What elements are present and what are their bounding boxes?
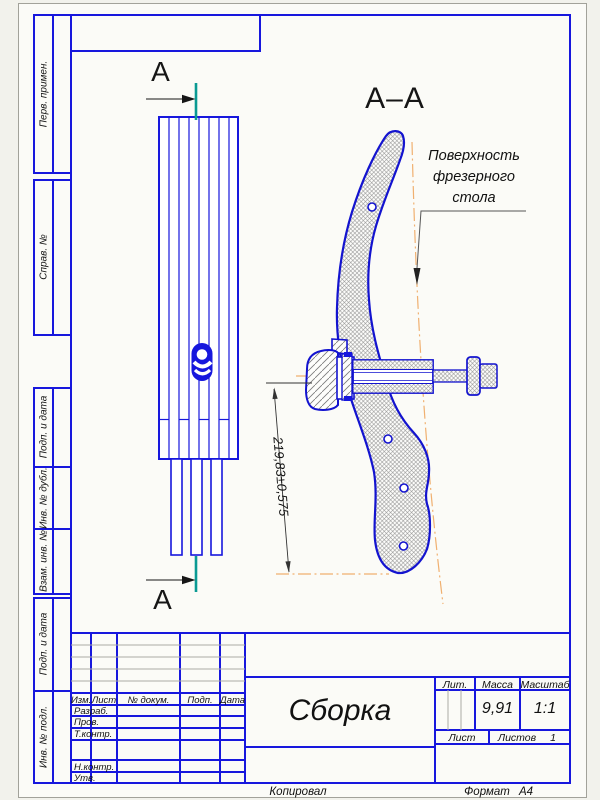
tb-lit-label: Лит. <box>435 679 475 691</box>
document-title: Сборка <box>247 694 433 728</box>
note-line: фрезерного <box>420 167 528 188</box>
tb-scale-value: 1:1 <box>520 700 570 718</box>
side-strip-label-podp-data-1: Подп. и дата <box>39 396 50 459</box>
drawing-sheet-page: { "drawing": { "section_mark_top": "А", … <box>0 0 600 800</box>
side-strip-label-vzam-inv: Взам. инв. № <box>39 530 50 592</box>
knob <box>192 343 213 381</box>
note-milling-table-surface: Поверхность фрезерного стола <box>420 146 528 209</box>
tb-row-razrab: Разраб. <box>74 706 108 717</box>
tb-mass-label: Масса <box>475 679 520 691</box>
tb-col-dokum: № докум. <box>117 695 180 706</box>
note-leader <box>414 211 527 285</box>
clamp-assembly <box>306 339 497 410</box>
prongs <box>171 459 222 555</box>
note-line: стола <box>420 188 528 209</box>
side-strip-label-podp-data-2: Подп. и дата <box>39 613 50 676</box>
section-view-title: А–А <box>355 82 435 116</box>
section-mark-top: А <box>146 56 176 88</box>
tb-col-podp: Подп. <box>180 695 220 706</box>
tb-sheet-label: Лист <box>435 732 489 744</box>
front-view-slats <box>159 117 238 555</box>
note-line: Поверхность <box>420 146 528 167</box>
tb-sheets-label: Листов <box>489 732 545 744</box>
side-strip-label-sprav-no: Справ. № <box>39 234 50 279</box>
tb-row-tkontr: Т.контр. <box>74 729 112 740</box>
tb-row-utv: Утв. <box>74 773 96 784</box>
tb-col-izm: Изм. <box>71 695 91 706</box>
footer-format-value: А4 <box>511 786 541 798</box>
tb-col-data: Дата <box>220 695 245 706</box>
tb-scale-label: Масштаб <box>520 679 570 691</box>
tb-row-prov: Пров. <box>74 717 99 728</box>
side-strip-label-perv-primen: Перв. примен. <box>39 61 50 127</box>
footer-copied: Копировал <box>248 786 348 798</box>
frame-grid <box>34 15 570 783</box>
tb-sheets-value: 1 <box>540 732 566 744</box>
section-mark-bottom: А <box>148 584 178 616</box>
tb-mass-value: 9,91 <box>475 700 520 718</box>
tb-row-nkontr: Н.контр. <box>74 762 114 773</box>
side-strip-label-inv-dubl: Инв. № дубл. <box>39 467 50 529</box>
tb-col-list: Лист <box>91 695 117 706</box>
side-strip-label-inv-podl: Инв. № подл. <box>39 706 50 768</box>
